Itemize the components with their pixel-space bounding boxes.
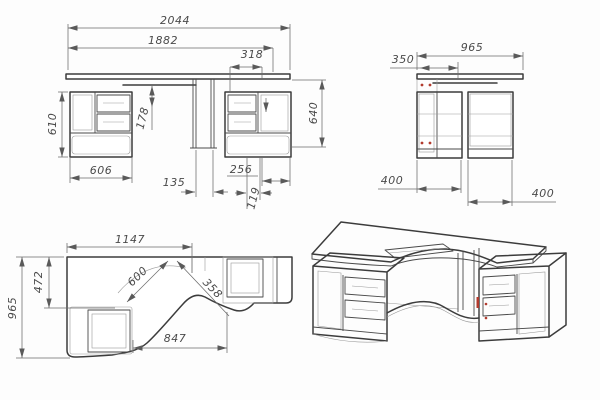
side-view-geometry bbox=[417, 74, 523, 158]
dim-tray-drop: 178 bbox=[134, 106, 152, 131]
plan-view: 1147 472 965 600 358 847 bbox=[6, 233, 292, 358]
dim-front-edge-span: 847 bbox=[164, 332, 187, 345]
iso-view bbox=[312, 222, 566, 342]
right-pedestal-side bbox=[468, 92, 513, 158]
desktop-front bbox=[66, 74, 290, 79]
side-view: 965 350 400 400 bbox=[378, 41, 556, 206]
fastener-dot bbox=[421, 84, 424, 87]
dim-desk-height: 640 bbox=[307, 102, 320, 125]
left-pedestal-side bbox=[417, 92, 462, 158]
desk-drawing-canvas: 2044 1882 318 610 178 640 bbox=[0, 0, 600, 400]
accent-red-dot bbox=[485, 317, 488, 320]
front-view: 2044 1882 318 610 178 640 bbox=[46, 14, 326, 211]
dim-overall-depth-plan: 965 bbox=[6, 297, 19, 320]
side-view-dimensions: 965 350 400 400 bbox=[378, 41, 556, 206]
dim-left-cabinet-width: 606 bbox=[90, 164, 113, 177]
dim-corner-depth: 472 bbox=[32, 271, 45, 294]
desktop-side bbox=[417, 74, 523, 79]
accent-red-dot bbox=[485, 303, 488, 306]
dim-center-gap: 135 bbox=[163, 176, 186, 189]
fastener-dot bbox=[421, 142, 424, 145]
dim-left-section-width: 1147 bbox=[115, 233, 145, 246]
left-pedestal-front bbox=[70, 92, 132, 157]
accent-red-mark bbox=[477, 297, 480, 308]
technical-drawing-page: 2044 1882 318 610 178 640 bbox=[0, 0, 600, 400]
dim-tray-depth: 350 bbox=[392, 53, 415, 66]
dim-overall-depth: 965 bbox=[461, 41, 484, 54]
dim-right-overhang: 318 bbox=[241, 48, 264, 61]
fastener-dot bbox=[429, 84, 432, 87]
dim-drawer-width: 256 bbox=[230, 163, 253, 176]
dim-right-cabinet-depth: 400 bbox=[532, 187, 555, 200]
iso-view-geometry bbox=[312, 222, 566, 342]
front-view-geometry bbox=[66, 74, 291, 157]
dim-overall-width: 2044 bbox=[160, 14, 190, 27]
dim-cabinet-height: 610 bbox=[46, 113, 59, 136]
keyboard-tray-iso bbox=[385, 244, 453, 258]
desktop-iso bbox=[312, 222, 546, 263]
dim-worktop-width: 1882 bbox=[148, 34, 178, 47]
fastener-dot bbox=[429, 142, 432, 145]
dim-left-cabinet-depth: 400 bbox=[381, 174, 404, 187]
